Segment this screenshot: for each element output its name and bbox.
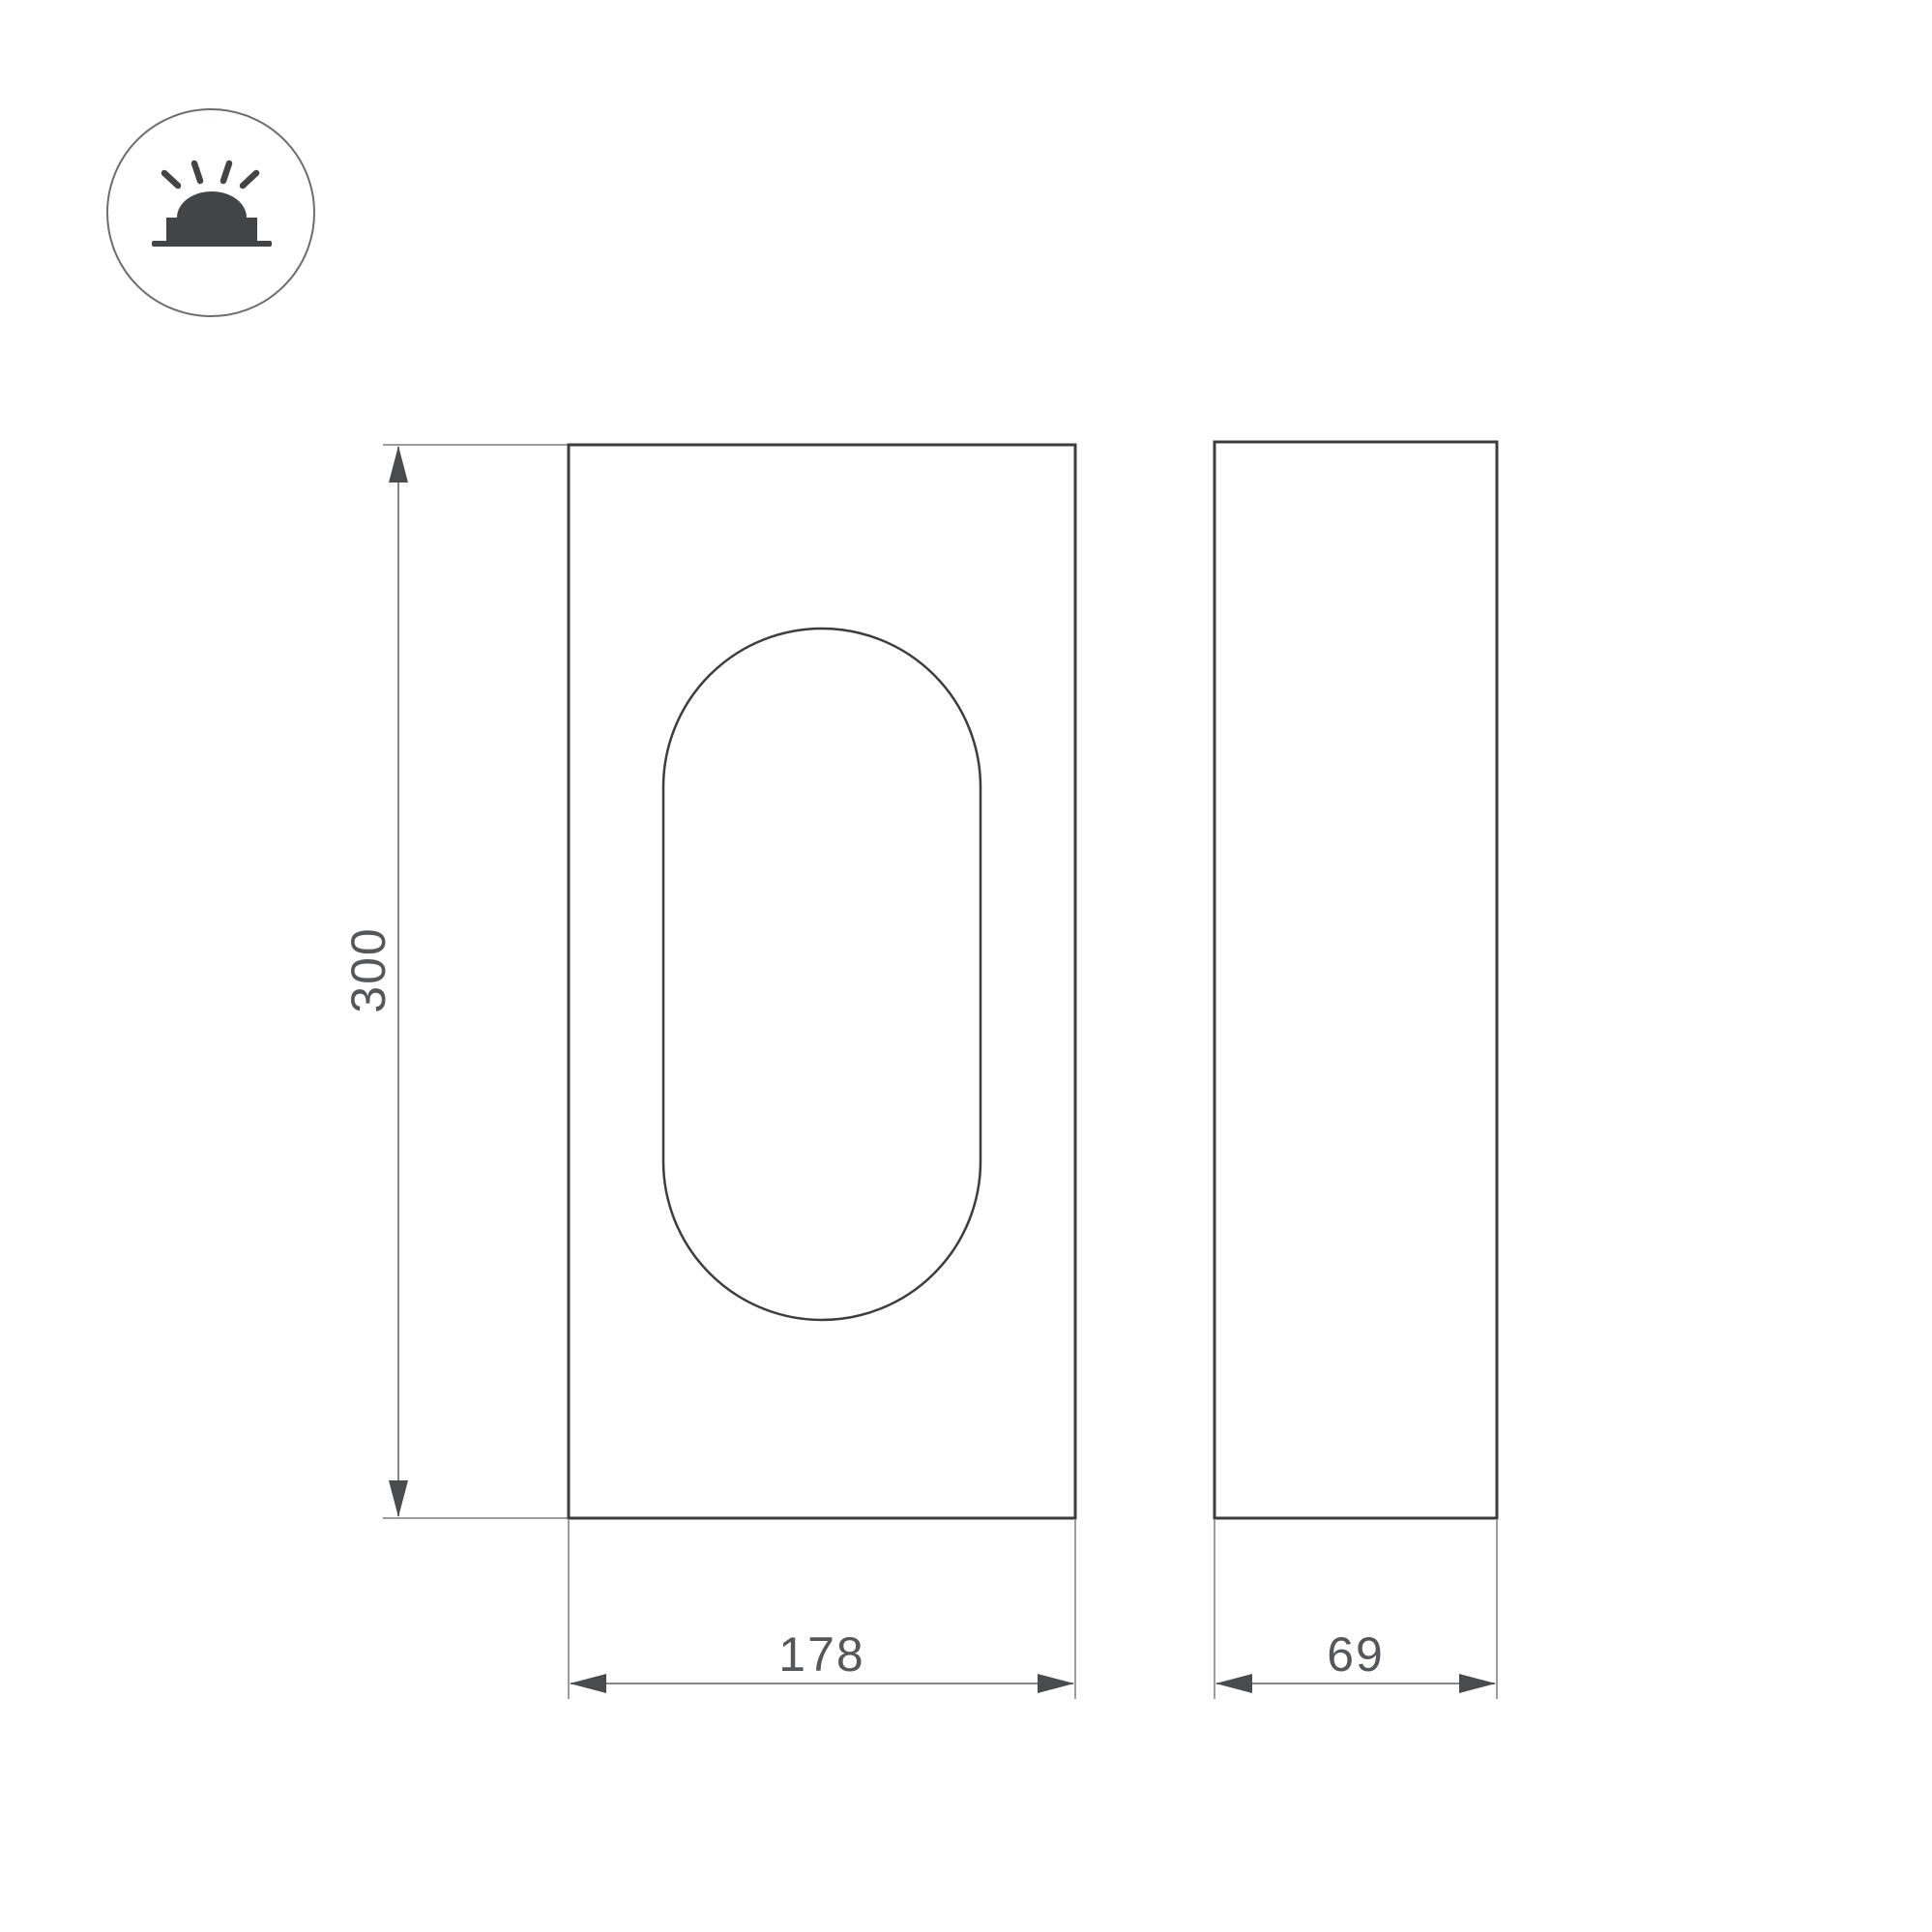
height-dim-arrow-down: [389, 1480, 408, 1517]
front-view-outline: [569, 445, 1075, 1518]
height-dimension: 300: [341, 445, 569, 1518]
height-dim-arrow-up: [389, 446, 408, 483]
product-type-badge: [107, 109, 314, 316]
depth-dimension: 69: [1215, 1520, 1497, 1699]
width-dim-arrow-left: [570, 1674, 606, 1693]
front-view: [569, 445, 1075, 1518]
width-dimension: 178: [569, 1520, 1075, 1699]
lamp-base-icon: [152, 241, 272, 247]
dimension-drawing: 300 178 69: [0, 0, 1932, 1932]
height-dim-label: 300: [341, 926, 395, 1012]
lamp-body-icon: [166, 218, 257, 241]
front-view-lens-cutout: [663, 629, 981, 1320]
technical-drawing-page: 300 178 69: [0, 0, 1932, 1932]
side-view-outline: [1215, 442, 1497, 1518]
width-dim-label: 178: [778, 1627, 864, 1682]
depth-dim-arrow-left: [1215, 1674, 1252, 1693]
depth-dim-label: 69: [1327, 1627, 1385, 1682]
depth-dim-arrow-right: [1459, 1674, 1496, 1693]
side-view: [1215, 442, 1497, 1518]
width-dim-arrow-right: [1038, 1674, 1074, 1693]
